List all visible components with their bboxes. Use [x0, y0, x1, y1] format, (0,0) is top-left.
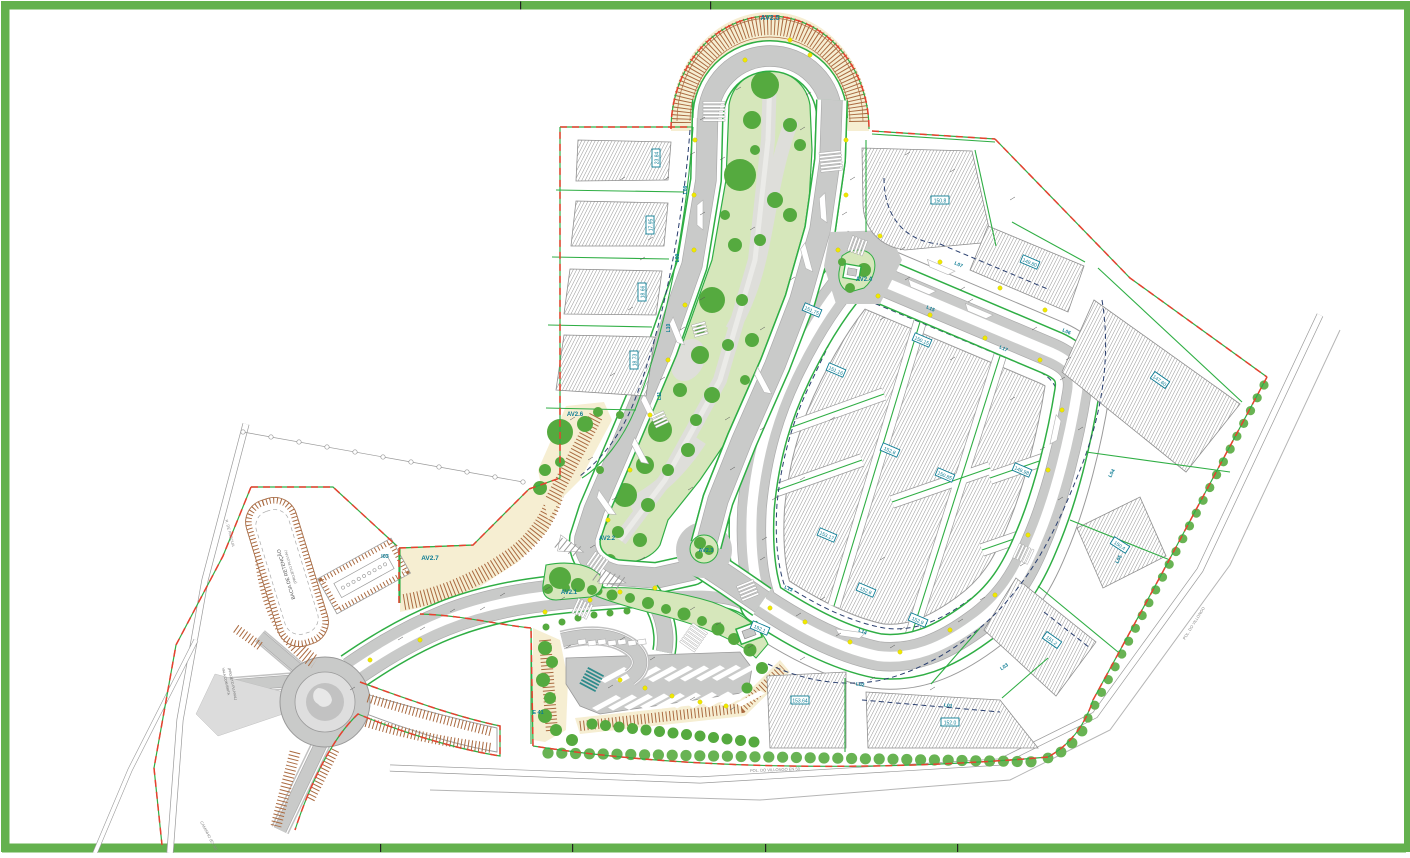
svg-text:17.95: 17.95: [648, 219, 654, 232]
svg-text:AV2.1: AV2.1: [561, 590, 578, 596]
svg-text:L01: L01: [943, 702, 953, 709]
svg-text:152.0: 152.0: [944, 720, 957, 726]
svg-text:L09: L09: [675, 253, 681, 262]
svg-text:E 41: E 41: [532, 710, 543, 716]
svg-text:I03: I03: [381, 554, 389, 560]
svg-text:AV2.5: AV2.5: [761, 15, 780, 22]
svg-text:AV2.6: AV2.6: [567, 412, 584, 418]
svg-text:L10: L10: [666, 323, 672, 332]
svg-text:23.84: 23.84: [654, 152, 660, 165]
svg-text:18.73: 18.73: [632, 354, 638, 367]
svg-text:153.64: 153.64: [792, 698, 808, 704]
svg-text:AV2.3: AV2.3: [699, 548, 714, 554]
svg-text:18.66: 18.66: [640, 286, 646, 299]
svg-text:AV2.2: AV2.2: [599, 536, 616, 542]
svg-text:L08: L08: [683, 185, 689, 194]
svg-text:150.8: 150.8: [934, 198, 947, 204]
svg-text:L02: L02: [855, 681, 865, 688]
svg-text:L11: L11: [657, 392, 663, 401]
svg-text:AV2.4: AV2.4: [856, 277, 873, 283]
svg-text:AV2.7: AV2.7: [421, 555, 439, 562]
